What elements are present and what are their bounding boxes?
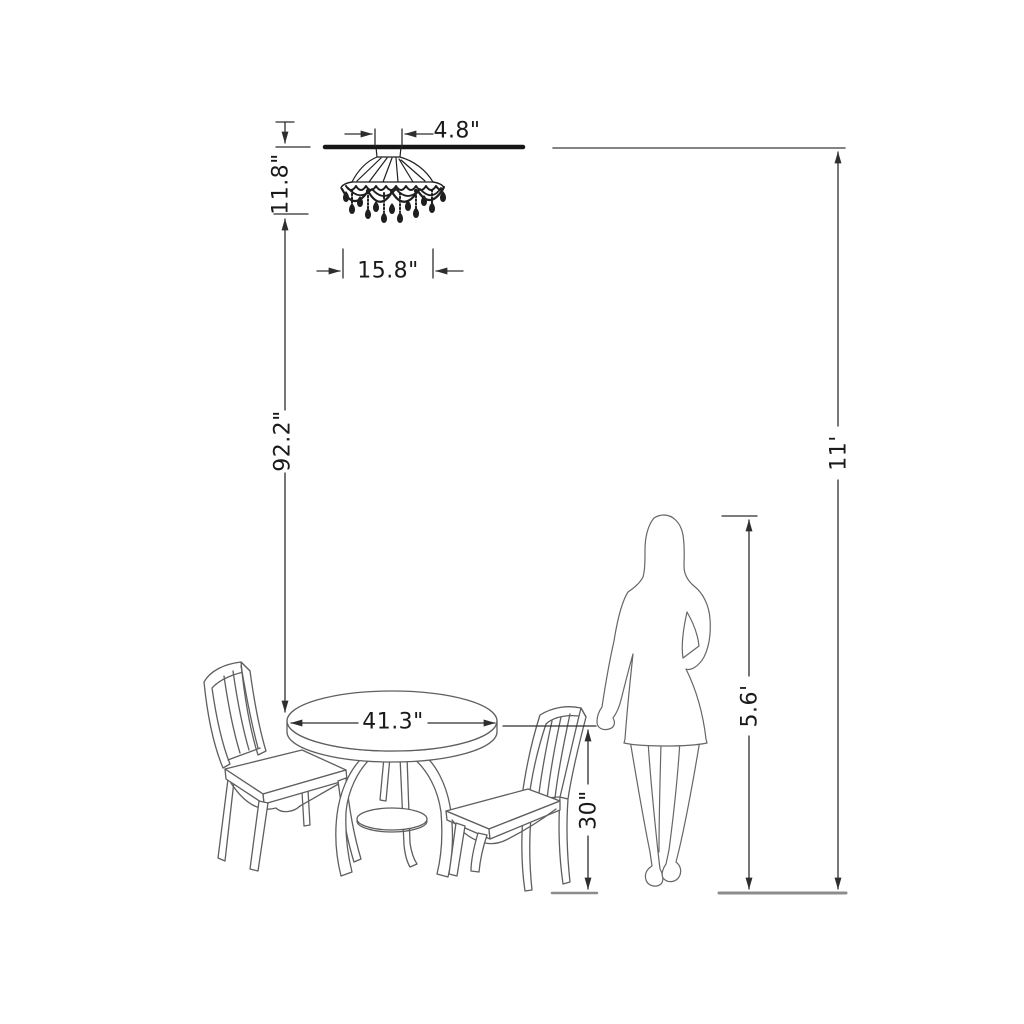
label-table-height: 30" <box>577 790 602 830</box>
label-fixture-height: 11.8" <box>269 153 294 215</box>
label-person-height: 5.6' <box>738 684 763 727</box>
label-table-diameter: 41.3" <box>362 710 424 735</box>
diagram-line-art <box>0 0 1024 1024</box>
label-canopy-width: 4.8" <box>433 119 480 144</box>
label-ceiling-height: 11' <box>827 435 852 471</box>
dimension-canopy-width <box>345 129 433 146</box>
label-clearance: 92.2" <box>271 410 296 472</box>
chandelier-drawing <box>341 147 446 223</box>
label-fixture-width: 15.8" <box>357 259 419 284</box>
person-silhouette <box>597 515 710 886</box>
dimension-diagram: 4.8" 11.8" 15.8" 92.2" 41.3" 30" 5.6' 11… <box>0 0 1024 1024</box>
